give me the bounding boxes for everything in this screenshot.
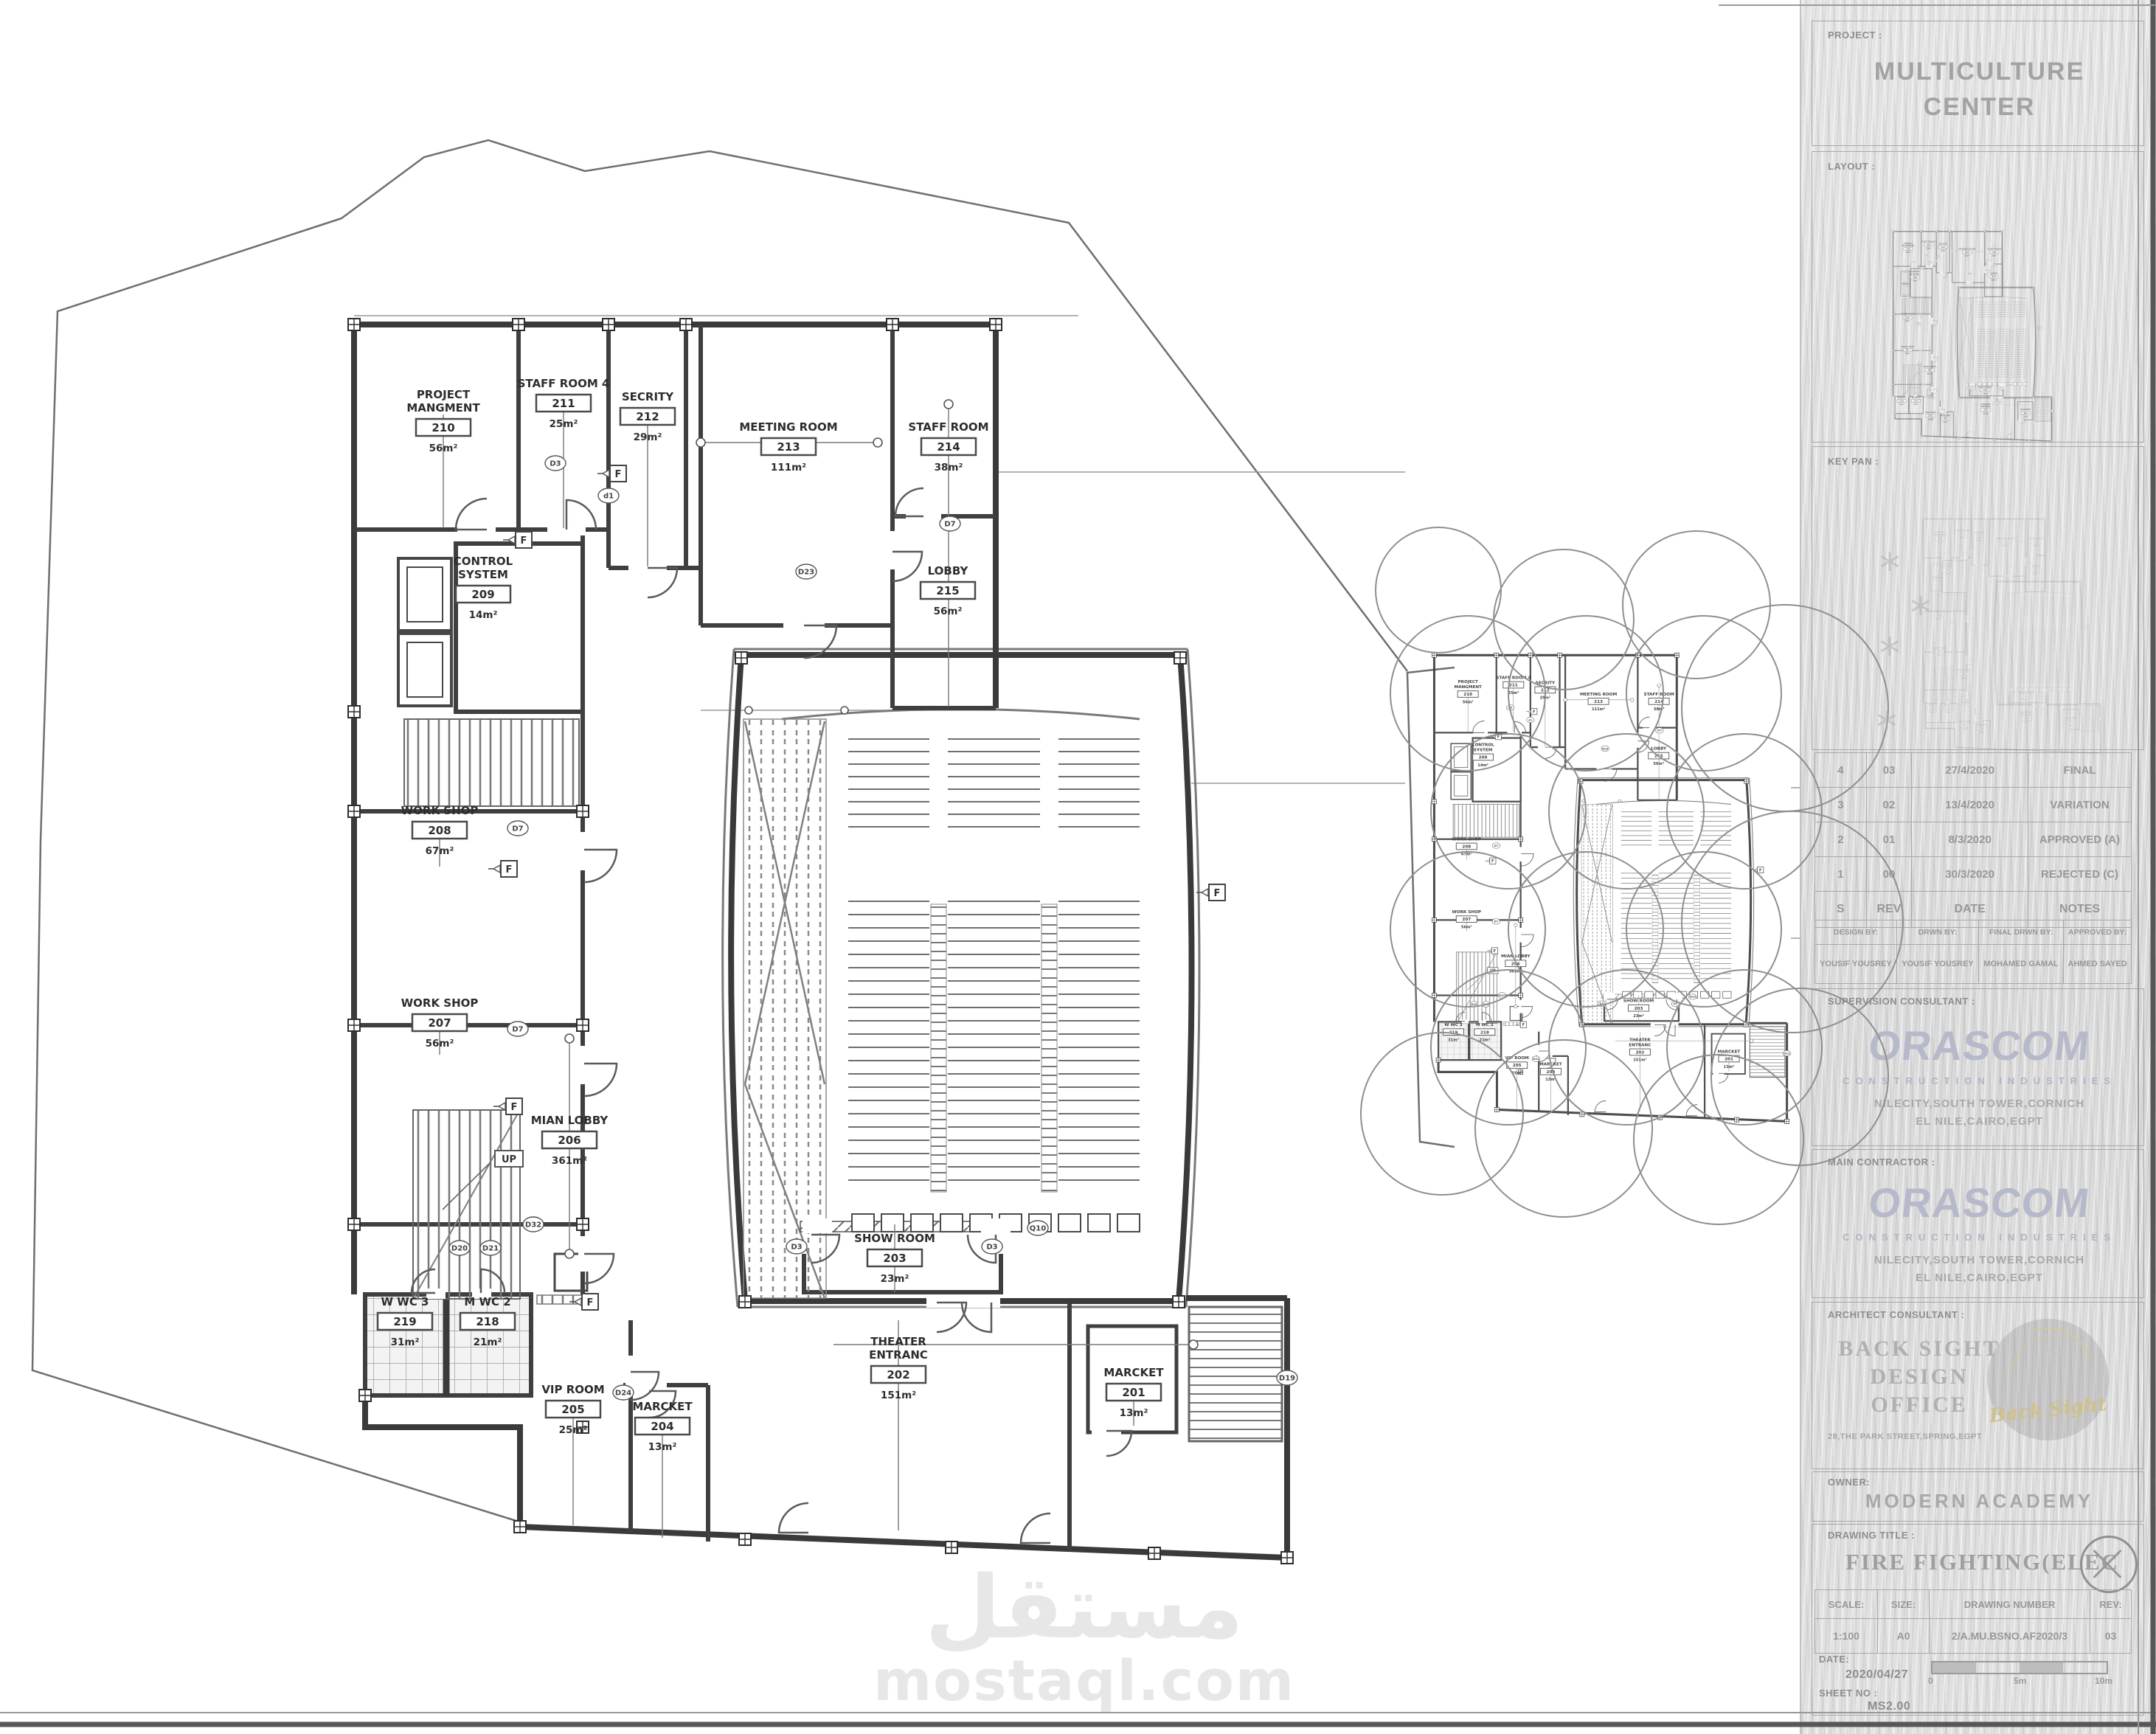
stair-top-left bbox=[404, 719, 579, 806]
column-marker bbox=[359, 1390, 371, 1401]
stair-bottom-right bbox=[1189, 1307, 1282, 1441]
drawing-sheet: PROJECT : MULTICULTURE CENTER LAYOUT : K… bbox=[0, 0, 2156, 1734]
room-label: MARCKET20413m² bbox=[632, 1400, 693, 1453]
revision-cell: 00 bbox=[1866, 857, 1912, 892]
svg-text:THEATER: THEATER bbox=[870, 1335, 926, 1348]
svg-text:D3: D3 bbox=[791, 1244, 802, 1252]
signature-label: DESIGN BY: bbox=[1815, 920, 1897, 945]
svg-text:F: F bbox=[521, 535, 527, 547]
door-tag: Q10 bbox=[1027, 1221, 1048, 1235]
door-swing bbox=[631, 1372, 659, 1400]
north-compass-icon bbox=[2080, 1536, 2138, 1593]
watermark: مستقل mostaql.com bbox=[841, 1562, 1328, 1713]
revision-cell: REJECTED (C) bbox=[2028, 857, 2132, 892]
svg-text:D21: D21 bbox=[482, 1245, 499, 1253]
column-marker bbox=[1281, 1552, 1293, 1564]
interior-walls bbox=[354, 325, 1070, 1550]
fire-alarm-icon: F bbox=[569, 1294, 598, 1310]
svg-text:CONTROL: CONTROL bbox=[454, 555, 513, 568]
svg-text:SYSTEM: SYSTEM bbox=[458, 568, 508, 581]
svg-text:205: 205 bbox=[561, 1403, 584, 1416]
column-markers bbox=[348, 319, 1293, 1564]
svg-text:D23: D23 bbox=[798, 569, 814, 577]
svg-text:WORK SHOP: WORK SHOP bbox=[401, 804, 479, 817]
project-name-line1: MULTICULTURE bbox=[1801, 58, 2156, 86]
mini-fire-plan bbox=[1432, 653, 1790, 1123]
project-label: PROJECT : bbox=[1828, 30, 1882, 41]
supervision-label: SUPERVISION CONSULTANT : bbox=[1828, 996, 1975, 1007]
svg-text:LOBBY: LOBBY bbox=[928, 564, 969, 578]
revision-cell: 8/3/2020 bbox=[1912, 822, 2028, 857]
svg-text:STAFF ROOM 4: STAFF ROOM 4 bbox=[518, 377, 610, 390]
theater-seat-rows bbox=[848, 739, 1140, 1180]
revision-cell: 2 bbox=[1815, 822, 1867, 857]
rev-label: REV: bbox=[2090, 1590, 2131, 1619]
reference-lines bbox=[354, 316, 1800, 938]
theater-seat-boxes bbox=[852, 1214, 1140, 1232]
layout-box bbox=[1812, 151, 2144, 443]
svg-text:D7: D7 bbox=[944, 521, 955, 529]
column-marker bbox=[348, 1019, 360, 1031]
room-label: M WC 221821m² bbox=[460, 1295, 515, 1348]
door-swing bbox=[1106, 1431, 1131, 1456]
keyplan-label: KEY PAN : bbox=[1828, 456, 1879, 467]
orascom-sub: CONSTRUCTION INDUSTRIES bbox=[1801, 1075, 2156, 1086]
scale-label: SCALE: bbox=[1815, 1590, 1878, 1619]
svg-text:206: 206 bbox=[558, 1134, 580, 1147]
revision-cell: 30/3/2020 bbox=[1912, 857, 2028, 892]
number-value: 2/A.MU.BSNO.AF2020/3 bbox=[1930, 1619, 2090, 1654]
door-swing bbox=[811, 1235, 839, 1263]
column-marker bbox=[514, 1521, 526, 1533]
svg-text:211: 211 bbox=[552, 397, 575, 410]
signature-table: DESIGN BY:DRWN BY:FINAL DRWN BY:APPROVED… bbox=[1814, 920, 2132, 984]
signature-label: FINAL DRWN BY: bbox=[1978, 920, 2063, 945]
column-marker bbox=[603, 319, 614, 330]
scalebar-0: 0 bbox=[1928, 1676, 1933, 1686]
svg-text:213: 213 bbox=[777, 440, 800, 454]
title-block: PROJECT : MULTICULTURE CENTER LAYOUT : K… bbox=[1800, 0, 2156, 1734]
column-marker bbox=[577, 805, 589, 817]
seat-box bbox=[940, 1214, 963, 1232]
room-label: STAFF ROOM 421125m² bbox=[518, 377, 610, 430]
svg-text:MARCKET: MARCKET bbox=[1103, 1366, 1164, 1379]
revision-cell: FINAL bbox=[2028, 753, 2132, 788]
supervision-address-1: NILECITY,SOUTH TOWER,CORNICH bbox=[1801, 1097, 2156, 1110]
column-marker bbox=[577, 1218, 589, 1230]
site-boundary bbox=[32, 140, 1455, 1521]
sheet-no-value: MS2.00 bbox=[1868, 1700, 1910, 1713]
revision-cell: VARIATION bbox=[2028, 788, 2132, 822]
door-tag: D7 bbox=[507, 1022, 528, 1036]
seat-box bbox=[999, 1214, 1022, 1232]
svg-text:218: 218 bbox=[476, 1315, 499, 1328]
fire-alarm-icon: F bbox=[1196, 884, 1225, 901]
architect-address: 28,THE PARK STREET,SPRING,EGPT bbox=[1828, 1432, 1982, 1441]
room-label: LOBBY21556m² bbox=[921, 564, 975, 617]
door-tag: D3 bbox=[545, 456, 566, 471]
leader-nodes bbox=[565, 400, 1198, 1349]
date-label: DATE: bbox=[1819, 1654, 1849, 1665]
svg-text:203: 203 bbox=[883, 1252, 906, 1265]
svg-text:111m²: 111m² bbox=[771, 462, 806, 474]
orascom-sub-2: CONSTRUCTION INDUSTRIES bbox=[1801, 1232, 2156, 1243]
signature-name: MOHAMED GAMAL bbox=[1978, 945, 2063, 984]
door-swing bbox=[412, 1269, 435, 1293]
room-label: MEETING ROOM213111m² bbox=[739, 420, 837, 474]
door-swing bbox=[804, 625, 836, 658]
room-labels: PROJECTMANGMENT21056m²STAFF ROOM 421125m… bbox=[378, 377, 1164, 1453]
door-swing bbox=[649, 1391, 676, 1418]
svg-text:38m²: 38m² bbox=[935, 462, 963, 474]
svg-text:F: F bbox=[615, 469, 622, 480]
svg-text:56m²: 56m² bbox=[429, 443, 458, 454]
column-marker bbox=[1173, 1296, 1185, 1308]
svg-text:204: 204 bbox=[651, 1420, 673, 1433]
door-tag: D24 bbox=[613, 1385, 634, 1400]
meta-table: SCALE: SIZE: DRAWING NUMBER REV: 1:100 A… bbox=[1814, 1589, 2132, 1654]
fire-alarm-icon: F bbox=[503, 532, 532, 548]
keyplan-box bbox=[1812, 446, 2144, 750]
door-swing bbox=[566, 500, 596, 530]
svg-text:201: 201 bbox=[1122, 1386, 1145, 1399]
door-swing bbox=[895, 488, 923, 516]
seat-box bbox=[881, 1214, 904, 1232]
fire-alarm-icon: F bbox=[493, 1098, 522, 1114]
supervision-address-2: EL NILE,CAIRO,EGPT bbox=[1801, 1115, 2156, 1128]
svg-text:207: 207 bbox=[428, 1016, 451, 1030]
column-marker bbox=[1174, 652, 1186, 664]
main-floor-plan: UP FFFFFF D3d1D23D7D7D7D32D20D21D24D3D3Q… bbox=[348, 319, 1297, 1564]
svg-text:STAFF ROOM: STAFF ROOM bbox=[908, 420, 988, 434]
column-marker bbox=[577, 1019, 589, 1031]
svg-text:56m²: 56m² bbox=[934, 606, 963, 617]
grand-stair-ramp bbox=[743, 719, 826, 1298]
rev-value: 03 bbox=[2090, 1619, 2131, 1654]
watermark-arabic: مستقل bbox=[841, 1562, 1328, 1654]
svg-text:D24: D24 bbox=[615, 1390, 631, 1398]
column-marker bbox=[348, 805, 360, 817]
scalebar-5: 5m bbox=[2014, 1676, 2026, 1686]
elevator-shafts bbox=[398, 558, 587, 1291]
aisle-steps bbox=[1041, 904, 1057, 1192]
svg-text:MIAN LOBBY: MIAN LOBBY bbox=[531, 1114, 609, 1127]
revision-cell: 1 bbox=[1815, 857, 1867, 892]
drawing-title: FIRE FIGHTING(ELEC bbox=[1845, 1549, 2119, 1575]
wc-tiles bbox=[448, 1296, 530, 1394]
room-label: PROJECTMANGMENT21056m² bbox=[406, 388, 480, 454]
svg-text:F: F bbox=[511, 1102, 518, 1113]
door-swing bbox=[962, 1303, 991, 1332]
door-swing bbox=[456, 499, 487, 530]
svg-text:219: 219 bbox=[393, 1315, 416, 1328]
svg-text:D32: D32 bbox=[525, 1221, 541, 1230]
svg-text:67m²: 67m² bbox=[426, 845, 454, 857]
showroom-hatched-wall bbox=[800, 1221, 1003, 1232]
seat-box bbox=[1029, 1214, 1051, 1232]
number-label: DRAWING NUMBER bbox=[1930, 1590, 2090, 1619]
door-tag: D19 bbox=[1277, 1370, 1297, 1385]
svg-text:D19: D19 bbox=[1279, 1375, 1295, 1383]
room-label: SHOW ROOM20323m² bbox=[854, 1232, 935, 1285]
fire-alarm-icon: F bbox=[597, 465, 626, 482]
size-label: SIZE: bbox=[1878, 1590, 1930, 1619]
door-swing bbox=[779, 1503, 808, 1533]
column-marker bbox=[735, 652, 747, 664]
theater-outer-outline bbox=[723, 649, 1199, 1307]
grand-stair-diagonals bbox=[745, 721, 825, 1298]
signature-label: APPROVED BY: bbox=[2064, 920, 2132, 945]
door-swing bbox=[584, 850, 617, 882]
seat-box bbox=[970, 1214, 992, 1232]
seat-box bbox=[1058, 1214, 1081, 1232]
revision-cell: 4 bbox=[1815, 753, 1867, 788]
svg-text:212: 212 bbox=[636, 410, 659, 423]
svg-text:151m²: 151m² bbox=[881, 1390, 916, 1401]
svg-text:F: F bbox=[1214, 888, 1221, 899]
svg-text:25m²: 25m² bbox=[550, 418, 578, 430]
door-swing bbox=[584, 1254, 614, 1283]
svg-text:31m²: 31m² bbox=[391, 1336, 420, 1348]
room-label: SECRITY21229m² bbox=[620, 390, 675, 443]
owner-name: MODERN ACADEMY bbox=[1801, 1490, 2156, 1513]
column-marker bbox=[348, 319, 360, 330]
svg-text:F: F bbox=[587, 1297, 594, 1308]
revision-cell: 13/4/2020 bbox=[1912, 788, 2028, 822]
door-tag: D7 bbox=[507, 821, 528, 836]
signature-name: YOUSIF YOUSREY bbox=[1896, 945, 1978, 984]
watermark-latin: mostaql.com bbox=[841, 1648, 1328, 1713]
column-marker bbox=[887, 319, 898, 330]
column-marker bbox=[990, 319, 1002, 330]
architect-name-2: DESIGN bbox=[1823, 1364, 2015, 1390]
svg-text:13m²: 13m² bbox=[648, 1441, 677, 1453]
orascom-logo-2: ORASCOM bbox=[1799, 1179, 2156, 1227]
seat-box bbox=[1117, 1214, 1140, 1232]
graphic-scalebar: 0 5m 10m bbox=[1931, 1661, 2108, 1686]
svg-text:SECRITY: SECRITY bbox=[622, 390, 674, 403]
svg-text:25m²: 25m² bbox=[559, 1424, 588, 1436]
door-swing bbox=[584, 1064, 617, 1096]
svg-text:PROJECT: PROJECT bbox=[417, 388, 471, 401]
svg-text:D7: D7 bbox=[512, 825, 523, 833]
svg-text:214: 214 bbox=[937, 440, 960, 454]
architect-label: ARCHITECT CONSULTANT : bbox=[1828, 1309, 1964, 1320]
svg-text:ENTRANC: ENTRANC bbox=[869, 1348, 928, 1362]
room-label: VIP ROOM20525m² bbox=[541, 1383, 604, 1436]
revision-cell: 01 bbox=[1866, 822, 1912, 857]
svg-text:D20: D20 bbox=[451, 1245, 468, 1253]
svg-text:202: 202 bbox=[887, 1368, 909, 1381]
revision-cell: 02 bbox=[1866, 788, 1912, 822]
door-swing bbox=[648, 568, 677, 597]
door-tag: D32 bbox=[523, 1217, 544, 1232]
svg-text:14m²: 14m² bbox=[469, 609, 498, 621]
room-label: THEATERENTRANC202151m² bbox=[869, 1335, 928, 1401]
scale-value: 1:100 bbox=[1815, 1619, 1878, 1654]
room-label: CONTROLSYSTEM20914m² bbox=[454, 555, 513, 621]
column-marker bbox=[577, 1421, 589, 1433]
contractor-label: MAIN CONTRACTOR : bbox=[1828, 1156, 1935, 1168]
revision-cell: 03 bbox=[1866, 753, 1912, 788]
seat-box bbox=[1088, 1214, 1110, 1232]
svg-text:209: 209 bbox=[471, 588, 494, 601]
svg-text:MEETING ROOM: MEETING ROOM bbox=[739, 420, 837, 434]
contractor-address-1: NILECITY,SOUTH TOWER,CORNICH bbox=[1801, 1254, 2156, 1266]
project-name-line2: CENTER bbox=[1801, 93, 2156, 122]
door-tag: D3 bbox=[982, 1239, 1002, 1254]
door-tag: D21 bbox=[480, 1241, 501, 1255]
svg-text:D3: D3 bbox=[550, 460, 561, 468]
svg-text:D3: D3 bbox=[986, 1244, 997, 1252]
revision-table: 40327/4/2020FINAL30213/4/2020VARIATION20… bbox=[1814, 752, 2132, 928]
room-label: W WC 321931m² bbox=[378, 1295, 432, 1348]
door-tag: D23 bbox=[796, 564, 817, 579]
door-swing bbox=[481, 1269, 505, 1293]
column-marker bbox=[739, 1296, 751, 1308]
door-tag: D20 bbox=[449, 1241, 470, 1255]
svg-text:D7: D7 bbox=[512, 1026, 523, 1034]
room-label: MARCKET20113m² bbox=[1103, 1366, 1164, 1419]
stair-bottom-left bbox=[413, 1110, 520, 1299]
svg-text:215: 215 bbox=[936, 584, 959, 597]
market201-walls bbox=[1088, 1326, 1176, 1432]
door-tag: d1 bbox=[598, 488, 619, 503]
fire-alarm-icon: F bbox=[488, 861, 517, 877]
scalebar-bar bbox=[1931, 1661, 2108, 1674]
svg-text:WORK SHOP: WORK SHOP bbox=[401, 996, 479, 1010]
svg-text:MANGMENT: MANGMENT bbox=[406, 401, 480, 415]
column-marker bbox=[348, 706, 360, 718]
service-ladder bbox=[537, 1295, 583, 1304]
svg-text:MARCKET: MARCKET bbox=[632, 1400, 693, 1413]
svg-text:M WC 2: M WC 2 bbox=[464, 1295, 510, 1308]
revision-cell: 3 bbox=[1815, 788, 1867, 822]
room-label: MIAN LOBBY206361m² bbox=[531, 1114, 609, 1167]
back-sight-stamp: Back Sight bbox=[1987, 1319, 2109, 1440]
drawing-title-label: DRAWING TITLE : bbox=[1828, 1530, 1915, 1541]
room-label: WORK SHOP20756m² bbox=[401, 996, 479, 1050]
column-marker bbox=[1148, 1547, 1160, 1559]
column-marker bbox=[348, 1218, 360, 1230]
scalebar-10: 10m bbox=[2095, 1676, 2112, 1686]
stair-flight-line bbox=[415, 1112, 519, 1297]
svg-text:210: 210 bbox=[431, 421, 454, 434]
svg-text:F: F bbox=[506, 864, 513, 875]
door-tag: D7 bbox=[940, 516, 960, 531]
svg-text:13m²: 13m² bbox=[1120, 1407, 1148, 1419]
seat-box bbox=[852, 1214, 874, 1232]
revision-cell: APPROVED (A) bbox=[2028, 822, 2132, 857]
column-marker bbox=[739, 1533, 751, 1545]
svg-text:W WC 3: W WC 3 bbox=[381, 1295, 429, 1308]
size-value: A0 bbox=[1878, 1619, 1930, 1654]
door-swing bbox=[1021, 1513, 1050, 1543]
wc-walls bbox=[365, 1294, 531, 1395]
column-marker bbox=[680, 319, 692, 330]
svg-text:Q10: Q10 bbox=[1030, 1225, 1046, 1233]
svg-text:23m²: 23m² bbox=[881, 1273, 909, 1285]
column-marker bbox=[513, 319, 524, 330]
date-value: 2020/04/27 bbox=[1845, 1668, 1908, 1682]
sheet-no-label: SHEET NO : bbox=[1819, 1688, 1877, 1699]
signature-label: DRWN BY: bbox=[1896, 920, 1978, 945]
svg-text:VIP ROOM: VIP ROOM bbox=[541, 1383, 604, 1396]
svg-text:21m²: 21m² bbox=[474, 1336, 502, 1348]
wc-tiles bbox=[367, 1296, 445, 1394]
architect-name-1: BACK SIGHT bbox=[1823, 1336, 2015, 1362]
door-gaps bbox=[426, 510, 1121, 1437]
svg-text:208: 208 bbox=[428, 824, 451, 837]
contractor-address-2: EL NILE,CAIRO,EGPT bbox=[1801, 1272, 2156, 1284]
svg-text:29m²: 29m² bbox=[634, 431, 662, 443]
svg-text:UP: UP bbox=[502, 1154, 516, 1165]
fire-alarm-symbols: FFFFFF bbox=[488, 465, 1225, 1310]
layout-label: LAYOUT : bbox=[1828, 161, 1875, 172]
room-label: STAFF ROOM21438m² bbox=[908, 420, 988, 474]
door-swing bbox=[892, 552, 922, 581]
svg-text:361m²: 361m² bbox=[552, 1155, 587, 1167]
svg-text:SHOW ROOM: SHOW ROOM bbox=[854, 1232, 935, 1245]
svg-text:56m²: 56m² bbox=[426, 1038, 454, 1050]
revision-cell: 27/4/2020 bbox=[1912, 753, 2028, 788]
door-tag: D3 bbox=[786, 1239, 807, 1254]
owner-label: OWNER: bbox=[1828, 1477, 1870, 1488]
signature-name: AHMED SAYED bbox=[2064, 945, 2132, 984]
aisle-steps bbox=[931, 904, 946, 1192]
door-tags: D3d1D23D7D7D7D32D20D21D24D3D3Q10D19 bbox=[449, 456, 1297, 1400]
room-label: WORK SHOP20867m² bbox=[401, 804, 479, 857]
column-marker bbox=[946, 1541, 957, 1553]
svg-text:d1: d1 bbox=[603, 493, 614, 501]
leader-lines bbox=[440, 395, 1193, 1538]
door-swings bbox=[412, 488, 1131, 1543]
up-label: UP bbox=[443, 1151, 523, 1210]
outer-walls bbox=[354, 325, 1287, 1558]
door-swing bbox=[937, 1303, 966, 1332]
control-room-walls bbox=[456, 544, 583, 712]
orascom-logo: ORASCOM bbox=[1799, 1022, 2156, 1069]
seat-box bbox=[911, 1214, 933, 1232]
signature-name: YOUSIF YOUSREY bbox=[1815, 945, 1897, 984]
door-swing bbox=[968, 1235, 996, 1263]
